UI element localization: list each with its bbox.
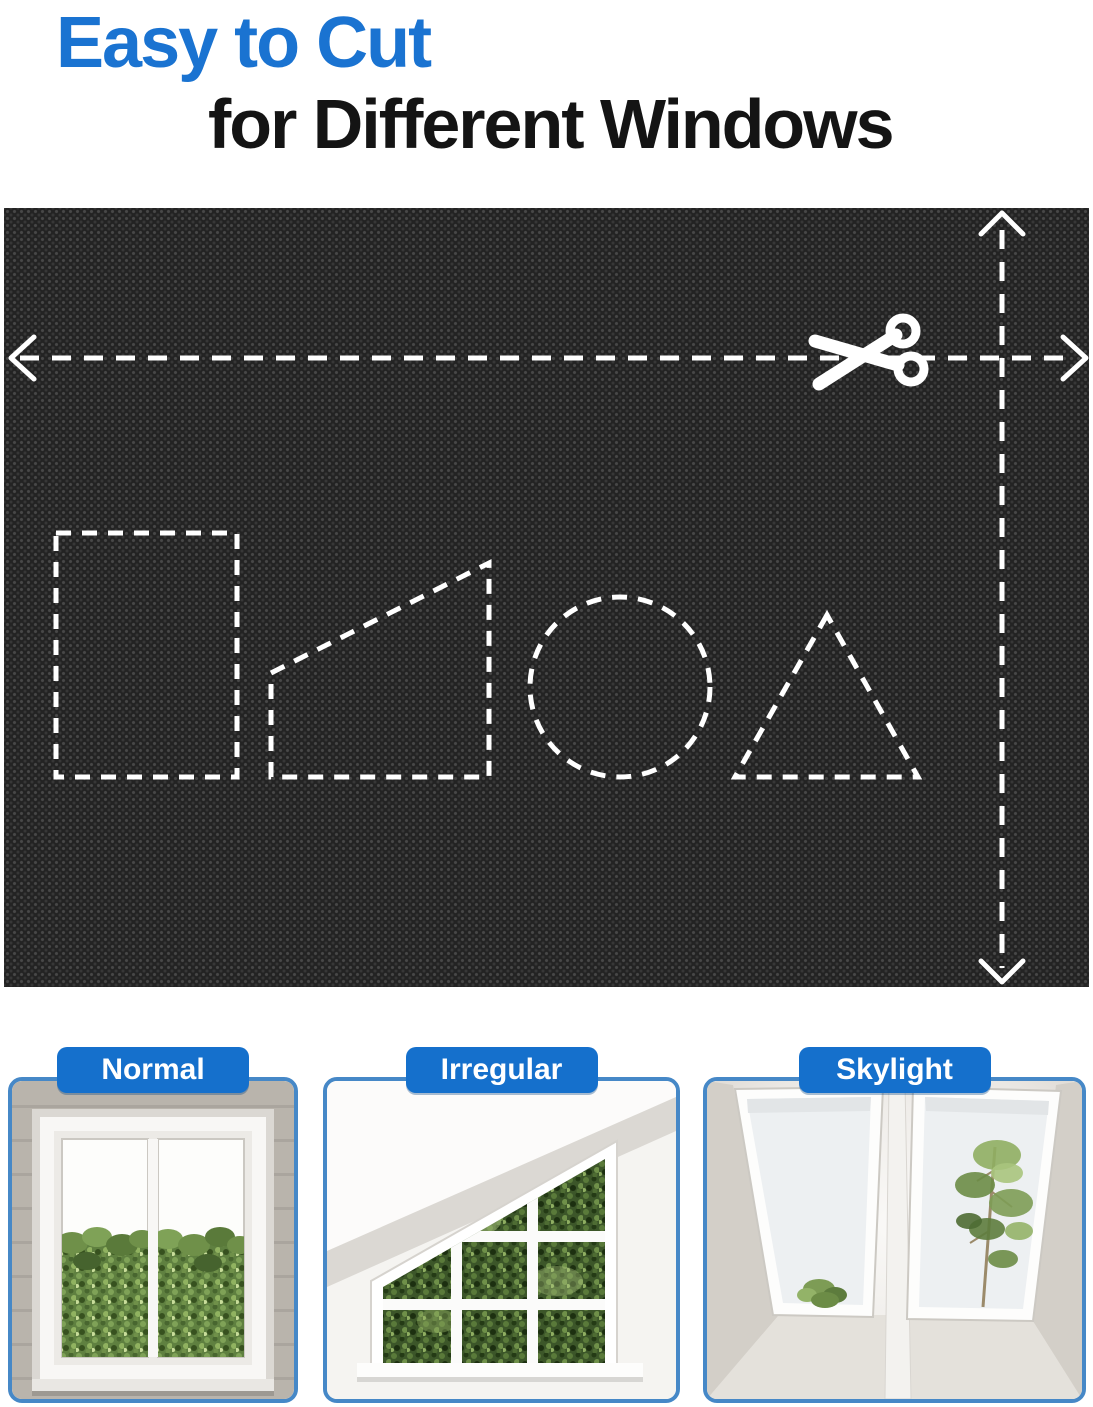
scissors-icon — [815, 318, 924, 384]
cut-shape-trapezoid — [271, 563, 489, 777]
card-label-skylight: Skylight — [799, 1047, 991, 1093]
cut-shape-rectangle — [56, 533, 237, 777]
card-label-normal: Normal — [57, 1047, 249, 1093]
arrow-down-icon — [981, 961, 1023, 982]
arrow-right-icon — [1063, 337, 1086, 379]
cut-shape-circle — [530, 597, 710, 777]
card-label-text: Irregular — [441, 1053, 563, 1086]
skylight-window-illustration — [707, 1081, 1082, 1399]
page-title-line1: Easy to Cut — [56, 2, 430, 84]
card-label-text: Normal — [101, 1053, 204, 1086]
vertical-cut-arrow-line — [981, 213, 1023, 982]
window-card-irregular: Irregular — [323, 1077, 680, 1403]
window-card-skylight: Skylight — [703, 1077, 1086, 1403]
window-card-normal: Normal — [8, 1077, 298, 1403]
card-label-irregular: Irregular — [406, 1047, 598, 1093]
normal-window-illustration — [12, 1081, 294, 1399]
window-photo-irregular — [327, 1081, 676, 1399]
blackout-fabric-panel — [4, 208, 1089, 987]
irregular-window-illustration — [327, 1081, 676, 1399]
window-photo-normal — [12, 1081, 294, 1399]
window-photo-skylight — [707, 1081, 1082, 1399]
page-title-line2: for Different Windows — [208, 84, 893, 164]
cut-guides-overlay — [4, 208, 1089, 987]
card-label-text: Skylight — [836, 1053, 953, 1086]
cut-shape-triangle — [735, 615, 918, 777]
